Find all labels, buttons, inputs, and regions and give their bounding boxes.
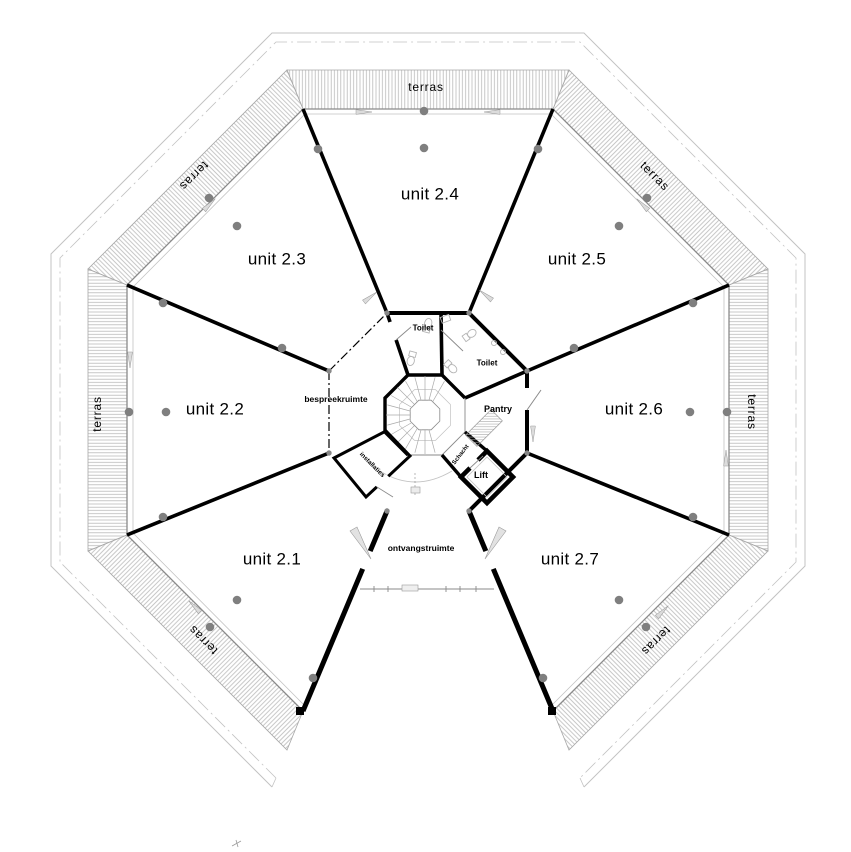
unit-label: unit 2.6 (605, 400, 663, 419)
stray-mark (232, 840, 241, 847)
unit-label: unit 2.7 (541, 550, 599, 569)
column-dot (686, 408, 695, 417)
column-dot (233, 596, 242, 605)
column-dot (539, 674, 548, 683)
column-dot (420, 144, 429, 153)
entrance-glass-wall (360, 585, 494, 592)
unit-label: unit 2.3 (248, 250, 306, 269)
column-dot (615, 596, 624, 605)
column-dot (723, 408, 732, 417)
unit-label: unit 2.4 (401, 185, 459, 204)
room-label-pantry: Pantry (484, 404, 512, 414)
column-dot (162, 408, 171, 417)
column-dot (570, 344, 579, 353)
column-dot (642, 623, 651, 632)
entrance-walls (296, 511, 556, 715)
column-dot (689, 513, 698, 522)
terras-label: terras (90, 396, 104, 431)
column-dot (689, 299, 698, 308)
column-dot (206, 623, 215, 632)
entrance-door-flag (485, 527, 506, 559)
unit-label: unit 2.1 (243, 550, 301, 569)
column-dot (159, 299, 168, 308)
unit-label: unit 2.5 (548, 250, 606, 269)
floor-plan-page: unit 2.1 unit 2.2 unit 2.3 unit 2.4 unit… (0, 0, 851, 852)
column-dot (314, 145, 323, 154)
column-dot (278, 344, 287, 353)
wall-end-cap (296, 707, 304, 715)
wall-end-cap (548, 707, 556, 715)
room-label-ontvangstruimte: ontvangstruimte (388, 543, 455, 553)
pantry-counter (466, 410, 503, 447)
room-label-installaties: installaties (358, 451, 386, 479)
room-label-toilet-left: Toilet (413, 324, 434, 333)
terras-label: terras (408, 80, 443, 94)
column-dot (205, 194, 214, 203)
room-label-toilet-right: Toilet (477, 359, 498, 368)
column-dot (125, 408, 134, 417)
column-dot (309, 674, 318, 683)
column-dot (615, 222, 624, 231)
floor-plan-svg: unit 2.1 unit 2.2 unit 2.3 unit 2.4 unit… (0, 0, 851, 852)
bespreekruimte-dashdot-boundary (329, 313, 387, 453)
column-dot (420, 107, 429, 116)
room-label-schacht: Schacht (451, 444, 470, 466)
unit-label: unit 2.2 (186, 400, 244, 419)
column-dot (534, 145, 543, 154)
column-dot (159, 513, 168, 522)
terras-label: terras (745, 394, 759, 429)
entrance-door-flag (350, 527, 371, 559)
room-label-lift: Lift (474, 470, 488, 480)
room-label-bespreekruimte: bespreekruimte (304, 394, 368, 404)
column-dot (643, 194, 652, 203)
column-dot (233, 222, 242, 231)
